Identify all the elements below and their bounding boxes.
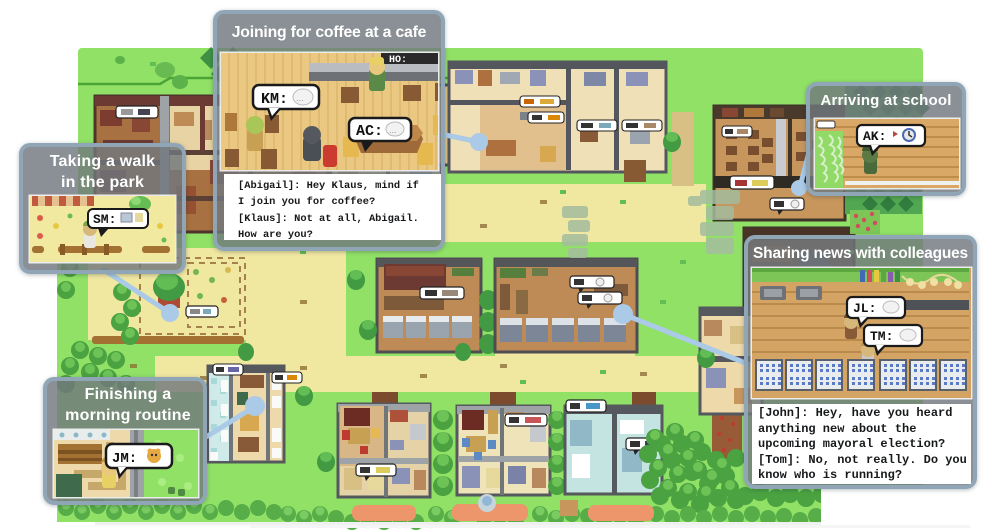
- svg-text:KM:: KM:: [261, 91, 288, 108]
- svg-text:TM:: TM:: [870, 329, 893, 344]
- svg-text:SM:: SM:: [93, 212, 116, 227]
- svg-text:HO:: HO:: [389, 55, 407, 66]
- svg-text:AK:: AK:: [863, 129, 886, 144]
- svg-text:JL:: JL:: [853, 301, 876, 316]
- svg-text:...: ...: [296, 93, 304, 103]
- svg-text:AC:: AC:: [356, 123, 383, 140]
- svg-text:JM:: JM:: [112, 451, 137, 467]
- svg-text:...: ...: [389, 125, 397, 135]
